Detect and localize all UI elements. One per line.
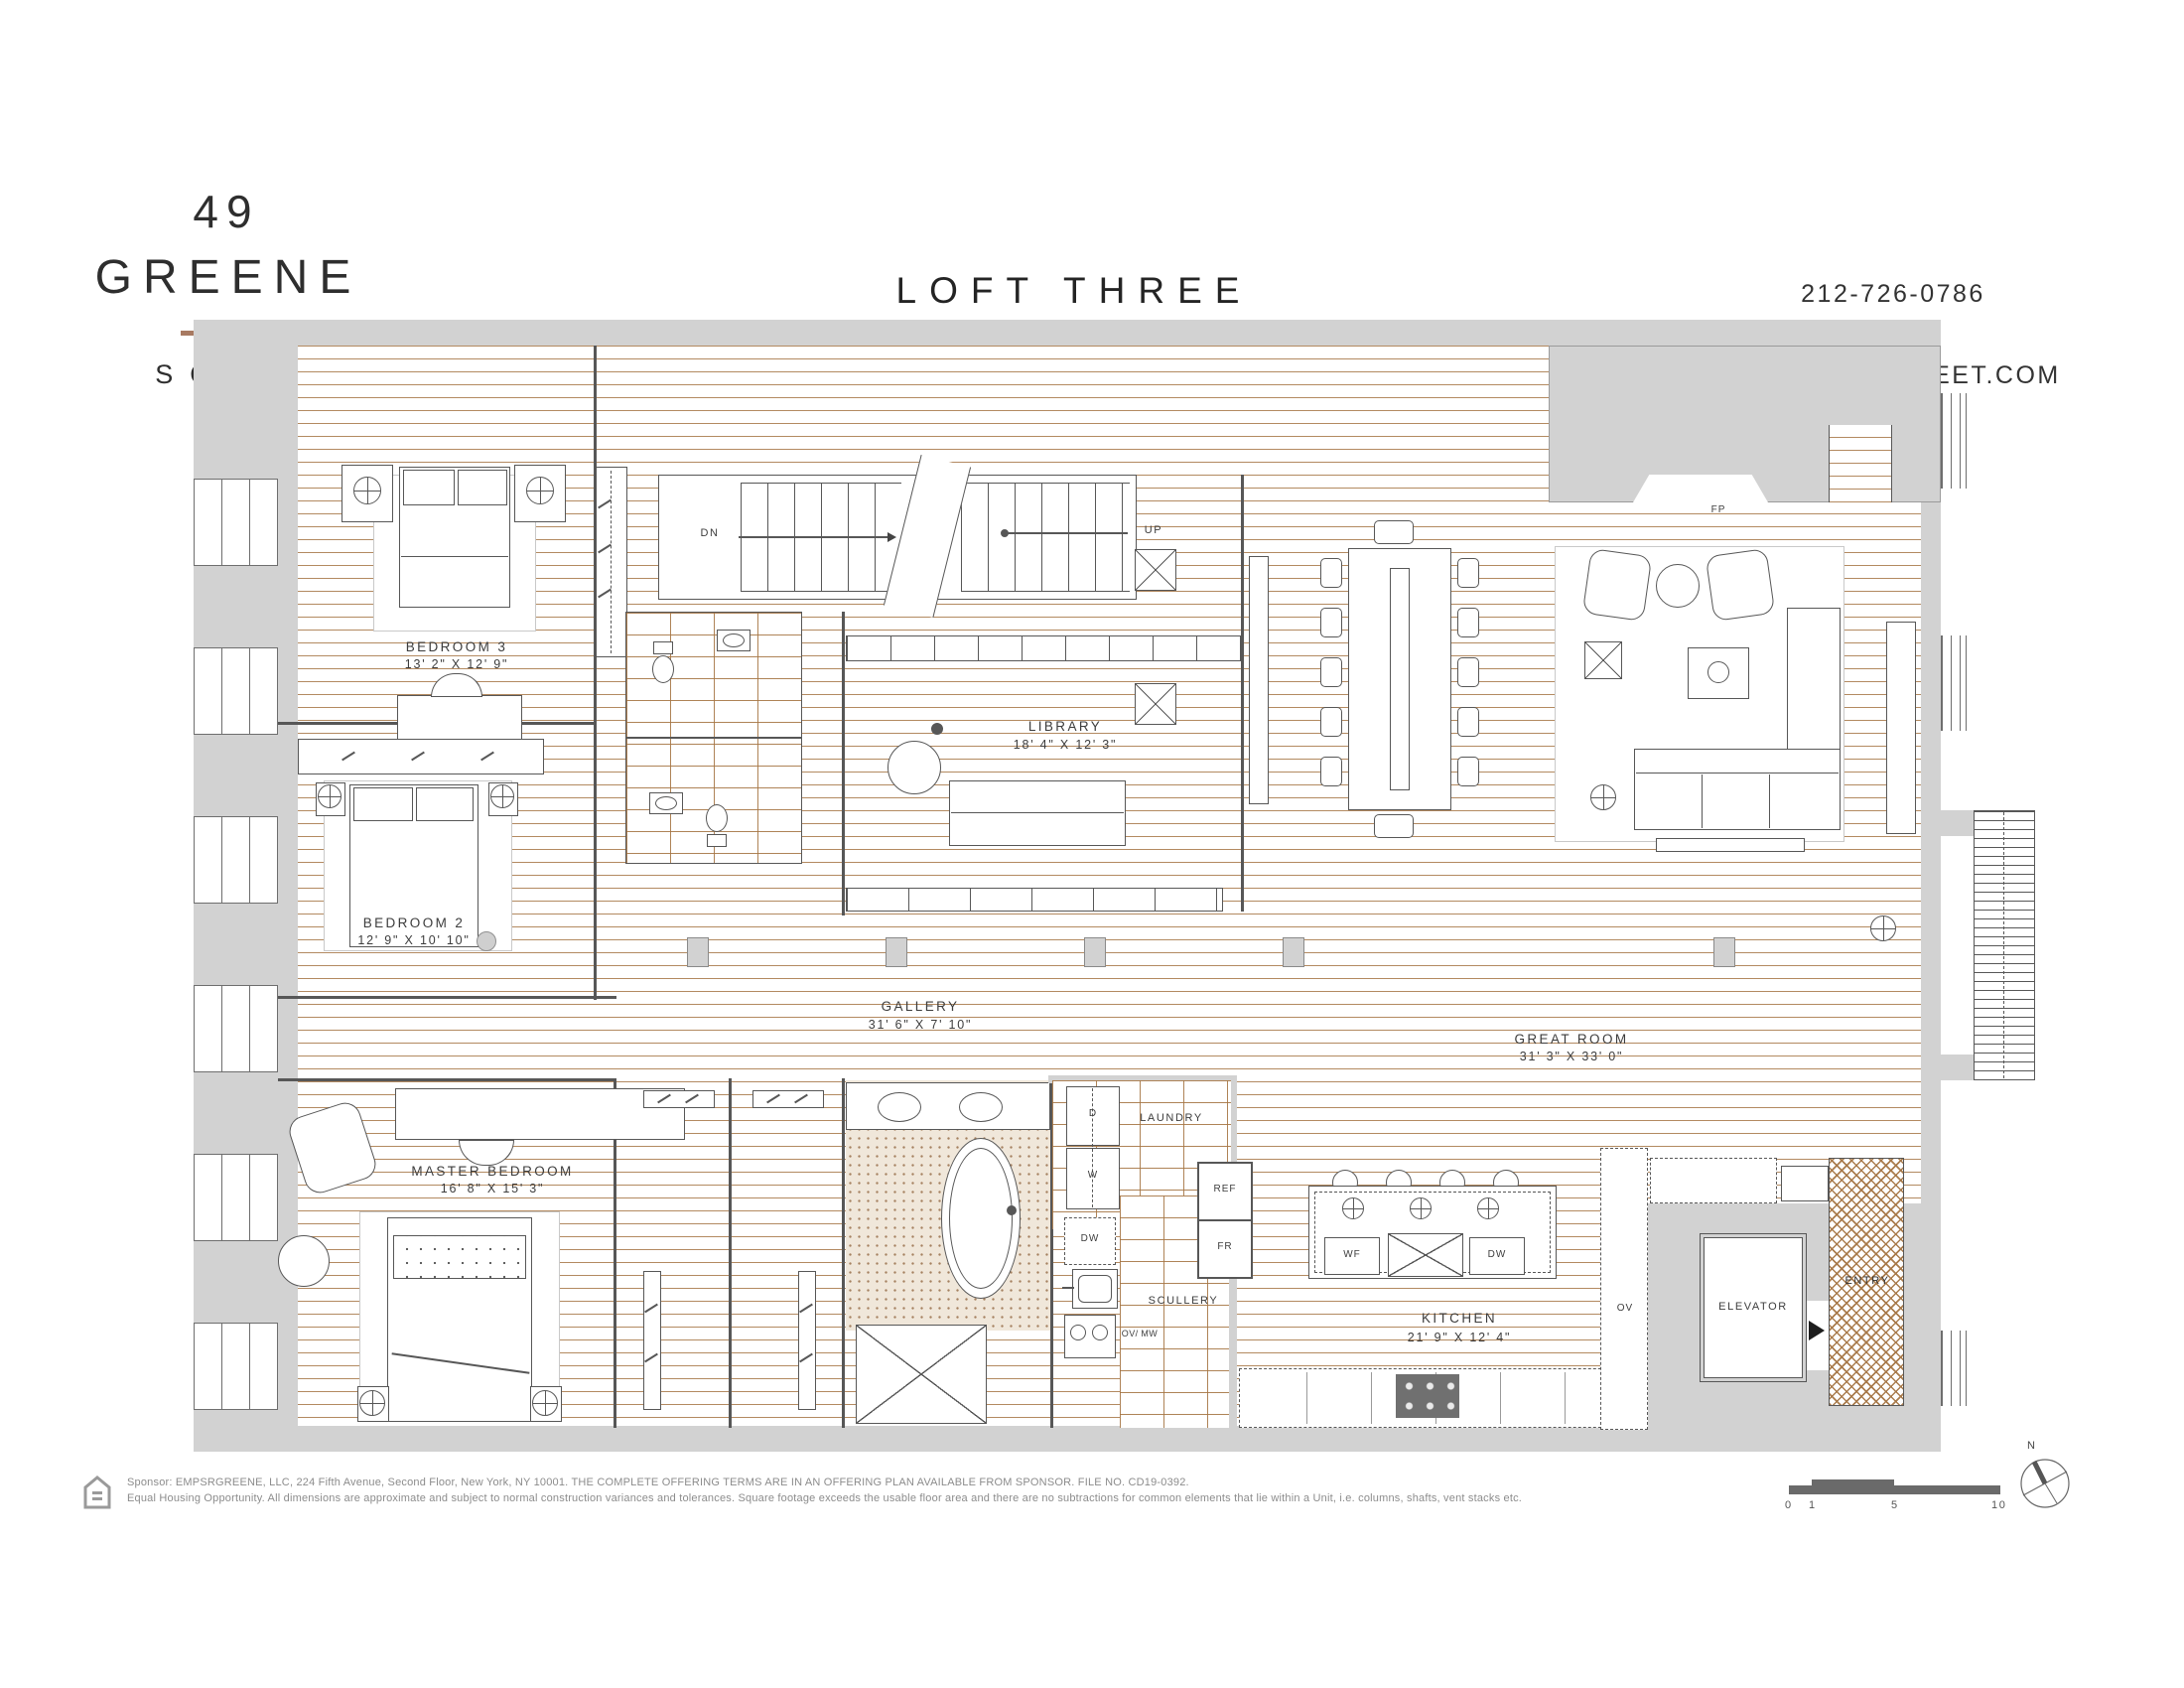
lounge-armchair <box>1706 548 1776 622</box>
dining-chair <box>1457 657 1479 687</box>
scullery-label: SCULLERY <box>1149 1295 1219 1307</box>
stair-treads-up <box>961 483 1130 592</box>
exterior-stair-stub-bottom <box>1941 1055 1974 1080</box>
vanity-sink <box>878 1092 921 1122</box>
pillow <box>416 787 474 821</box>
exterior-stair-stub-top <box>1941 810 1974 836</box>
scale-segment-thin-2 <box>1894 1485 2000 1494</box>
pillow <box>353 787 413 821</box>
washer-dryer-dash <box>1092 1088 1093 1207</box>
lamp-icon <box>526 477 554 504</box>
great-room-label: GREAT ROOM <box>1514 1032 1628 1047</box>
lamp-icon <box>532 1390 558 1416</box>
column <box>687 937 709 967</box>
lamp-icon <box>318 784 341 808</box>
entry-console-counter <box>1650 1158 1777 1203</box>
range-cooktop <box>1396 1374 1459 1418</box>
tub-faucet <box>1007 1205 1017 1215</box>
shower <box>856 1325 987 1424</box>
logo-number: 49 <box>193 185 259 238</box>
sofa <box>1634 749 1841 830</box>
dining-chair <box>1374 814 1414 838</box>
closet-rail <box>798 1271 816 1410</box>
round-side-table <box>1656 564 1700 608</box>
wine-fridge-label: WF <box>1343 1249 1361 1260</box>
toilet-bowl <box>652 655 674 683</box>
scale-tick-1: 1 <box>1809 1499 1817 1511</box>
oven-microwave-label: OV/ MW <box>1122 1329 1158 1338</box>
wall-master-bath-left <box>842 1078 845 1428</box>
round-side-table <box>278 1235 330 1287</box>
toilet-bowl <box>706 804 728 832</box>
column <box>1283 937 1304 967</box>
dining-chair <box>1457 757 1479 786</box>
compass-icon <box>2015 1454 2075 1513</box>
equal-housing-icon <box>83 1476 111 1509</box>
lamp-icon <box>1477 1197 1499 1219</box>
window <box>1941 393 1967 489</box>
sofa-cushion-divider <box>1702 774 1703 828</box>
tub-inner <box>949 1148 1013 1289</box>
bedroom2-label: BEDROOM 2 <box>363 915 466 930</box>
fireplace-notch <box>1633 475 1768 502</box>
window <box>1941 1331 1967 1406</box>
stair-down-label: DN <box>700 527 719 539</box>
fireplace-label: FP <box>1711 504 1726 515</box>
vanity-sink <box>959 1092 1003 1122</box>
master-desk <box>395 1088 685 1140</box>
dryer-label: D <box>1089 1108 1097 1119</box>
wall-top <box>278 320 1941 346</box>
dining-chair <box>1320 558 1342 588</box>
dining-chair <box>1320 657 1342 687</box>
wall-scullery-right-stub <box>1229 1277 1237 1428</box>
dining-chair <box>1374 520 1414 544</box>
library-armchair <box>887 741 941 794</box>
window <box>194 479 279 566</box>
master-label: MASTER BEDROOM <box>411 1164 573 1179</box>
dining-chair <box>1457 608 1479 637</box>
master-dims: 16' 8" X 15' 3" <box>441 1182 545 1196</box>
sink-faucet <box>1062 1287 1074 1289</box>
sofa-cushion-line <box>951 812 1124 813</box>
window <box>194 647 279 735</box>
kitchen-dims: 21' 9" X 12' 4" <box>1408 1331 1512 1344</box>
sofa-cushion-line <box>1636 773 1839 774</box>
double-vanity <box>846 1082 1050 1130</box>
scale-segment-thin-1 <box>1789 1485 1812 1494</box>
laundry-label: LAUNDRY <box>1140 1112 1203 1124</box>
stair-up-arrow-line <box>1007 532 1128 534</box>
wall-master-top <box>278 1078 616 1081</box>
dining-chair <box>1457 558 1479 588</box>
scale-tick-5: 5 <box>1891 1499 1899 1511</box>
dining-table-runner <box>1390 568 1410 790</box>
blanket-line <box>401 556 508 557</box>
oven-label: OV <box>1617 1303 1633 1314</box>
dining-chair <box>1320 608 1342 637</box>
toilet-tank <box>707 834 727 847</box>
closet-rail <box>643 1090 715 1108</box>
wall-bedroom2-right <box>594 722 597 1000</box>
washer-label: W <box>1088 1170 1098 1181</box>
window <box>1941 635 1967 731</box>
toilet-tank <box>653 641 673 654</box>
closet-divider-wall <box>729 1078 732 1428</box>
compass-north-label: N <box>2027 1440 2037 1452</box>
window <box>194 1323 279 1410</box>
closet-rail <box>611 471 612 653</box>
gallery-dims: 31' 6" X 7' 10" <box>869 1018 973 1032</box>
column <box>1084 937 1106 967</box>
kitchen-label: KITCHEN <box>1422 1311 1497 1326</box>
lamp-icon <box>1342 1197 1364 1219</box>
coffee-table-tray <box>1707 661 1729 683</box>
bedroom3-dims: 13' 2" X 12' 9" <box>405 657 509 671</box>
bedroom3-label: BEDROOM 3 <box>406 639 508 654</box>
phone-number: 212-726-0786 <box>1801 280 1985 309</box>
stair-down-arrow-head <box>887 532 896 542</box>
exterior-fire-stair <box>1974 810 2035 1080</box>
dining-chair <box>1320 757 1342 786</box>
bedroom2-closet <box>298 739 544 774</box>
footer-line-2: Equal Housing Opportunity. All dimension… <box>127 1492 1522 1504</box>
closet-rail <box>643 1271 661 1410</box>
scullery-sink-basin <box>1078 1275 1112 1303</box>
scale-segment-thick <box>1812 1479 1894 1494</box>
lamp-icon <box>353 477 381 504</box>
library-base-cabinet <box>846 888 1223 912</box>
wall-bottom <box>278 1426 1941 1452</box>
wall-library-right <box>1241 475 1244 912</box>
dining-sideboard <box>1249 556 1269 804</box>
lounge-armchair <box>1582 548 1653 622</box>
column <box>1713 937 1735 967</box>
wall-bedroom2-bottom <box>278 996 616 999</box>
window <box>194 985 279 1072</box>
bedroom3-closet <box>596 467 627 657</box>
window <box>194 1154 279 1241</box>
lamp-icon <box>1590 784 1616 810</box>
stair-up-label: UP <box>1145 524 1162 536</box>
lamp-icon <box>490 784 514 808</box>
library-sofa <box>949 780 1126 846</box>
sofa-cushion-divider <box>1769 774 1770 828</box>
dining-chair <box>1320 707 1342 737</box>
entry-label: ENTRY <box>1844 1275 1889 1287</box>
lamp-icon <box>1870 915 1896 941</box>
column <box>886 937 907 967</box>
fireplace-wall-window-gap <box>1829 425 1892 502</box>
oven-knob <box>1092 1325 1108 1340</box>
stair-down-arrow-line <box>739 536 887 538</box>
window-bench <box>1886 622 1916 834</box>
console-table <box>1656 838 1805 852</box>
elevator-arrow-icon <box>1809 1321 1825 1340</box>
side-table <box>1584 641 1622 679</box>
footer-line-1: Sponsor: EMPSRGREENE, LLC, 224 Fifth Ave… <box>127 1477 1189 1488</box>
lamp-icon <box>359 1390 385 1416</box>
logo-name: GREENE <box>95 250 362 305</box>
bath-sink-basin <box>723 633 745 647</box>
freezer-label: FR <box>1217 1241 1232 1252</box>
pillow-band <box>393 1235 526 1279</box>
ref-freezer-divider <box>1197 1219 1253 1221</box>
library-bookshelf <box>846 635 1241 661</box>
floorplan-sheet: { "header": { "logo_number": "49", "logo… <box>0 0 2184 1688</box>
side-table <box>1135 683 1176 725</box>
bedroom2-dims: 12' 9" X 10' 10" <box>357 933 470 947</box>
window <box>194 816 279 904</box>
dishwasher-label: DW <box>1081 1233 1100 1244</box>
sofa-return <box>1787 608 1841 751</box>
oven-knob <box>1070 1325 1086 1340</box>
pillow <box>458 470 507 505</box>
bath-divider-wall <box>625 737 802 739</box>
library-label: LIBRARY <box>1028 719 1102 734</box>
library-dims: 18' 4" X 12' 3" <box>1014 738 1118 752</box>
exterior-stair-centerline <box>2003 812 2004 1078</box>
lamp-icon <box>1410 1197 1432 1219</box>
gallery-label: GALLERY <box>882 999 960 1014</box>
ceiling-fixture-icon <box>477 931 496 951</box>
floor-lamp-icon <box>931 723 943 735</box>
elevator-label: ELEVATOR <box>1718 1301 1788 1313</box>
island-sink <box>1388 1233 1463 1277</box>
scale-tick-10: 10 <box>1991 1499 2006 1511</box>
tall-oven-cabinet <box>1600 1148 1648 1430</box>
closet-rail <box>752 1090 824 1108</box>
great-room-dims: 31' 3" X 33' 0" <box>1520 1050 1624 1063</box>
page-title: LOFT THREE <box>896 270 1253 312</box>
side-table <box>1135 549 1176 591</box>
bedroom3-desk <box>397 695 522 745</box>
dining-chair <box>1457 707 1479 737</box>
refrigerator-label: REF <box>1214 1184 1237 1195</box>
entry-bench <box>1781 1166 1829 1201</box>
scale-tick-0: 0 <box>1785 1499 1793 1511</box>
bath-sink-basin <box>655 796 677 810</box>
wall-library-left <box>842 612 845 915</box>
pillow <box>403 470 455 505</box>
island-dishwasher-label: DW <box>1488 1249 1507 1260</box>
